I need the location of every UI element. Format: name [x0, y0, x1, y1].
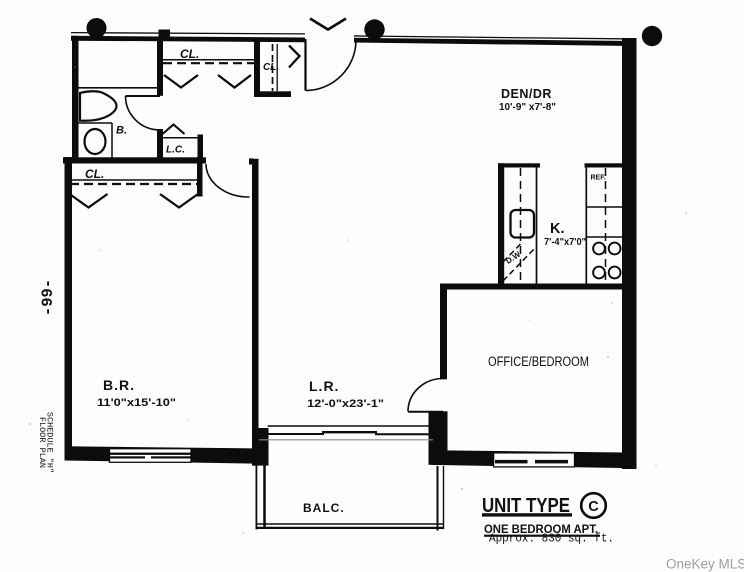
svg-text:DEN/DR: DEN/DR — [501, 87, 552, 101]
svg-text:L.C.: L.C. — [166, 145, 185, 156]
svg-text:FLOOR PLAN: FLOOR PLAN — [37, 417, 47, 468]
svg-text:12'-0"x23'-1": 12'-0"x23'-1" — [307, 398, 384, 410]
svg-text:CL.: CL. — [180, 47, 199, 61]
svg-text:L.R.: L.R. — [309, 378, 339, 394]
svg-text:B.: B. — [116, 125, 127, 137]
svg-text:B.R.: B.R. — [103, 377, 135, 393]
svg-text:C: C — [588, 499, 599, 515]
svg-text:CL.: CL. — [85, 167, 104, 181]
svg-text:OneKey MLS: OneKey MLS — [666, 557, 744, 572]
svg-text:11'0"x15'-10": 11'0"x15'-10" — [97, 397, 176, 409]
svg-text:7'-4"x7'0": 7'-4"x7'0" — [544, 237, 586, 248]
svg-text:10'-9" x7'-8": 10'-9" x7'-8" — [499, 102, 556, 113]
svg-text:CL.: CL. — [263, 62, 279, 73]
svg-text:K.: K. — [550, 221, 565, 237]
svg-text:REF.: REF. — [591, 175, 606, 182]
svg-text:OFFICE/BEDROOM: OFFICE/BEDROOM — [488, 354, 589, 369]
svg-text:BALC.: BALC. — [303, 501, 345, 515]
svg-text:-99-: -99- — [39, 279, 57, 316]
svg-text:Approx. 830 sq. ft.: Approx. 830 sq. ft. — [489, 533, 614, 546]
